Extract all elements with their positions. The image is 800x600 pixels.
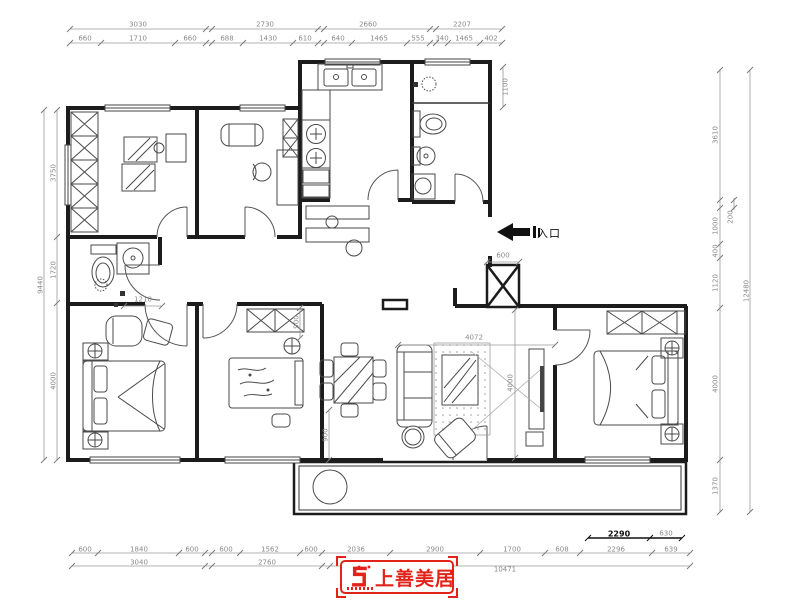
bar-counter xyxy=(306,228,369,242)
bar-stool xyxy=(326,216,338,228)
toilet-tank xyxy=(91,245,116,254)
chair xyxy=(373,383,386,400)
study-room xyxy=(221,119,298,205)
shower-drain xyxy=(422,77,436,91)
lounge-chair xyxy=(221,124,263,146)
chair xyxy=(373,360,386,377)
window xyxy=(65,145,71,205)
pillow xyxy=(94,398,107,424)
armchair xyxy=(106,316,142,346)
pillow xyxy=(94,366,107,392)
window xyxy=(425,59,470,65)
floor-plan-svg xyxy=(0,0,800,600)
cabinet xyxy=(303,170,329,183)
bar-counter xyxy=(306,206,369,219)
sink-bowl xyxy=(352,69,376,86)
bathroom-top xyxy=(412,77,446,199)
logo-corner-mark xyxy=(336,588,346,598)
media-box xyxy=(526,432,543,446)
headboard xyxy=(83,361,92,431)
stool xyxy=(154,143,164,153)
window xyxy=(585,457,650,463)
nightstand xyxy=(272,414,290,427)
logo-text: 上善美居 xyxy=(375,564,455,591)
window xyxy=(90,457,180,463)
bathroom-left xyxy=(91,243,149,307)
tv xyxy=(540,366,544,412)
toilet-tank xyxy=(413,111,420,137)
study-desk xyxy=(277,150,298,205)
window xyxy=(105,105,170,111)
chair xyxy=(341,343,358,356)
dimension-bold xyxy=(585,535,685,541)
sink-bowl xyxy=(324,69,348,86)
headboard xyxy=(295,361,303,405)
logo-corner-mark xyxy=(448,556,458,566)
logo-corner-mark xyxy=(448,588,458,598)
balcony-wall xyxy=(294,462,686,514)
window xyxy=(225,457,300,463)
logo-corner-mark xyxy=(336,556,346,566)
pillow xyxy=(652,390,665,418)
living-room xyxy=(397,343,544,460)
entrance-label: 入口 xyxy=(537,225,561,241)
logo-tagline xyxy=(347,587,373,590)
entrance-arrow xyxy=(497,223,540,241)
bedroom-middle xyxy=(229,309,304,427)
column xyxy=(383,300,407,309)
sofa xyxy=(397,345,432,427)
round-table xyxy=(313,470,347,504)
kitchen xyxy=(302,64,382,256)
bedroom-right xyxy=(594,311,685,444)
mat xyxy=(122,164,155,191)
cabinet xyxy=(303,185,329,197)
desk xyxy=(166,134,186,162)
balcony xyxy=(313,470,347,504)
window xyxy=(240,105,285,111)
pillow xyxy=(652,356,665,384)
room-tatami xyxy=(71,112,186,232)
floor-plan: 3030273026602207660171066068814306106401… xyxy=(0,0,800,600)
ottoman xyxy=(143,318,174,346)
company-logo: 上善美居 xyxy=(340,560,454,594)
headboard xyxy=(668,351,678,425)
quilt-pattern xyxy=(238,368,274,396)
chair xyxy=(341,404,358,417)
wardrobe xyxy=(607,311,685,334)
mat xyxy=(124,137,157,162)
dining-area xyxy=(320,343,386,417)
